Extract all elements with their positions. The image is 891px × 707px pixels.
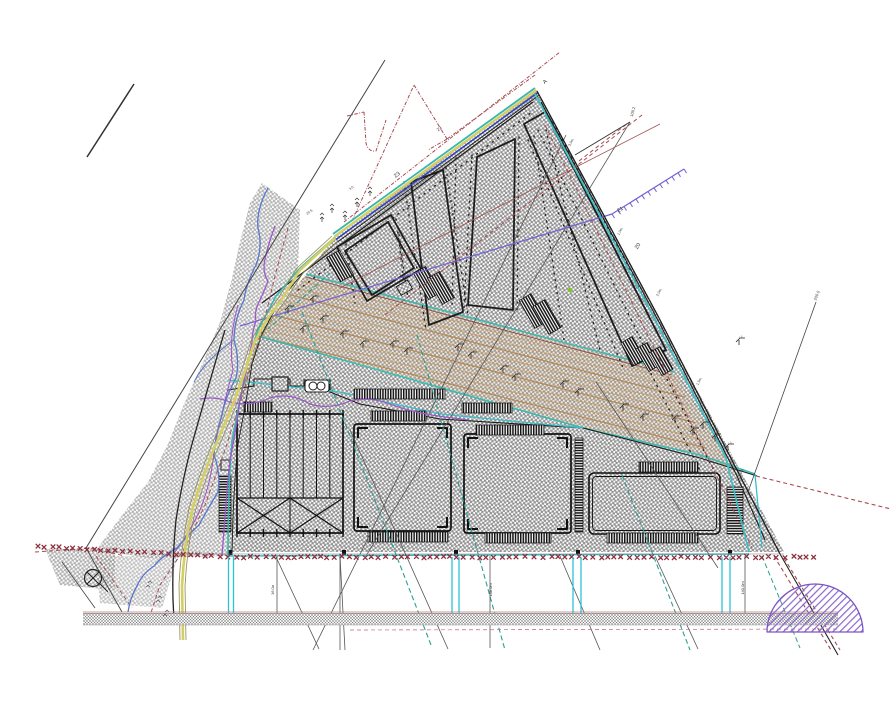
svg-text:148.0m: 148.0m: [488, 583, 493, 597]
svg-text:140.0m: 140.0m: [740, 581, 745, 595]
svg-text:16.0a: 16.0a: [270, 584, 275, 595]
